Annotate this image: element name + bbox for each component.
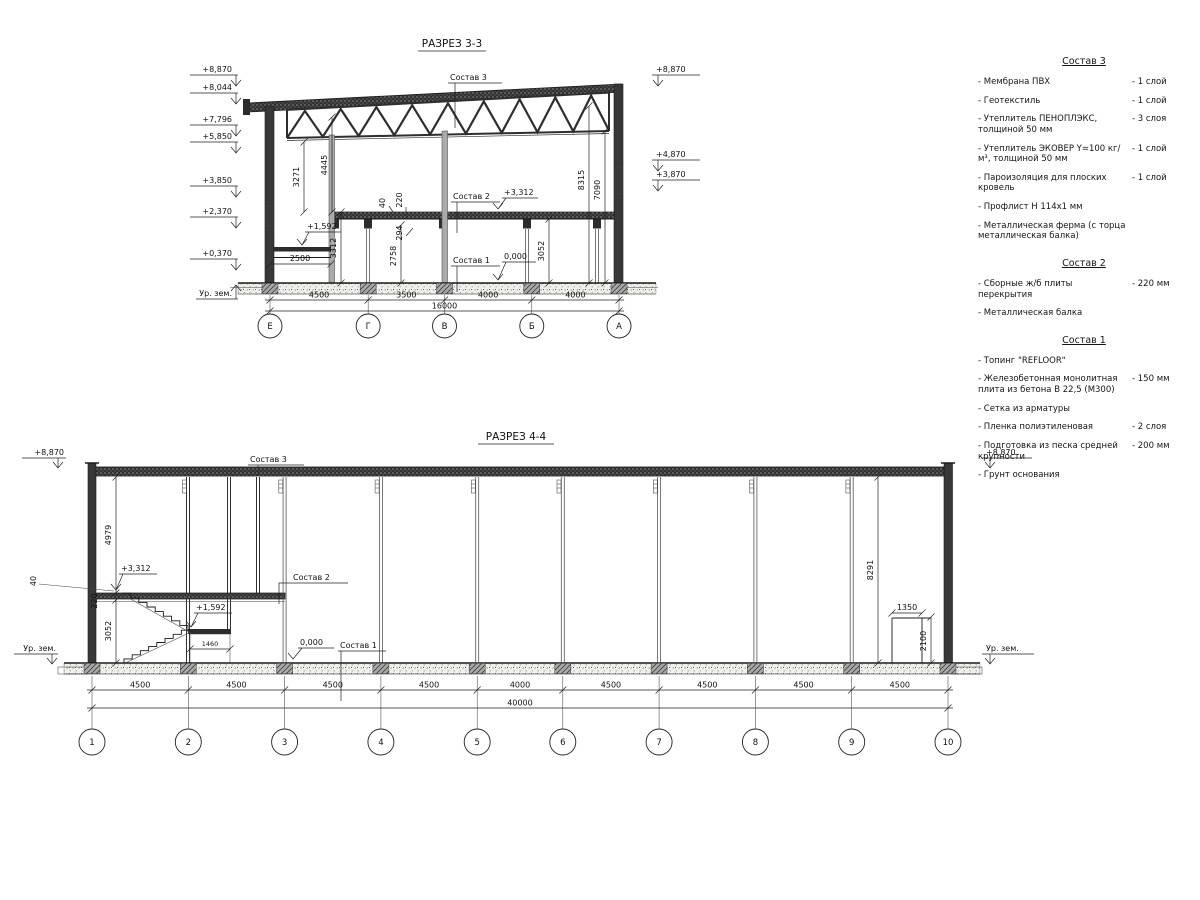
sostav3-label: Состав 3 [450,73,487,82]
foundation-pad [844,663,860,674]
door-under-landing [190,634,230,663]
elevation-label: +8,870 [202,65,232,74]
axis-bubble-label: Г [366,322,371,332]
span-dim-label: 4500 [890,681,910,690]
dim-line-2100 [928,614,935,667]
elevation-label: +5,850 [202,132,232,141]
columns-group [183,477,854,663]
span-dim-label: 4000 [510,681,530,690]
axis-bubble-label: В [442,322,448,332]
mezzanine-slab [331,212,614,219]
sostav1-label: Состав 1 [340,641,377,650]
column-cap-plate [375,480,379,493]
axis-dimension-chain: 450035004000400016000ЕГВБА [258,291,631,339]
ground-level-label: Ур. зем. [23,644,56,653]
level-3312-label: +3,312 [121,564,151,573]
legend-sostav3-items: - Мембрана ПВХ- 1 слой - Геотекстиль- 1 … [978,77,1190,242]
stair-landing [188,629,231,634]
column-cap-plate [557,480,561,493]
total-dim-label: 16000 [432,302,457,311]
legend-item: - Железобетонная монолитная плита из бет… [978,374,1190,395]
legend-item: - Утеплитель ЭКОВЕР Y=100 кг/м³, толщино… [978,144,1190,165]
dim-label: 3312 [329,238,338,258]
dim-line-8291 [875,474,882,667]
dim-label: 40 [378,198,387,208]
legend-title-sostav3: Состав 3 [978,56,1190,67]
beam-section [523,220,531,229]
legend-item: - Топинг "REFLOOR" [978,356,1190,367]
legend-item: - Профлист Н 114х1 мм [978,202,1190,213]
elevation-label: +8,870 [656,65,686,74]
elevation-label: +8,044 [202,83,232,92]
dim-leader-294 [406,228,413,236]
span-dim-label: 4500 [309,291,329,300]
roof-slab [248,84,621,112]
foundation-pad [651,663,667,674]
sostav2-label: Состав 2 [293,573,330,582]
dim-label: 3052 [104,621,113,641]
legend-item: - Геотекстиль- 1 слой [978,96,1190,107]
dim-label: 3271 [292,167,301,187]
total-dim-label: 40000 [507,699,532,708]
dim-label: 1350 [897,603,917,612]
span-dim-label: 4000 [565,291,585,300]
axis-bubble-label: Б [529,322,535,332]
stair-stringer-1 [121,632,191,665]
column-cap-plate [279,480,283,493]
column-cap-plate [750,480,754,493]
span-dim-label: 4500 [419,681,439,690]
roof-end-plate [243,99,250,115]
foundation-pad [524,283,540,294]
dim-chain-left [113,474,120,667]
sostav2-leader [279,583,348,604]
elevation-mark [652,180,700,191]
section-4-4-structure [58,463,982,674]
floor-slab [64,663,980,674]
span-dim-label: 4000 [478,291,498,300]
elevation-mark [190,259,241,270]
axis-bubble-label: 6 [560,738,565,748]
beam-section [364,220,372,229]
legend-item: - Металлическая балка [978,308,1190,319]
mezzanine-beam-lines [96,599,285,602]
legend-item: - Металлическая ферма (с торца металличе… [978,221,1190,242]
elevation-label: +3,870 [656,170,686,179]
column-cap-plate [183,480,187,493]
dim-label: 2758 [389,246,398,266]
legend-section-sostav2: Состав 2 - Сборные ж/б плиты перекрытия-… [978,258,1190,319]
steel-column [442,131,448,283]
interior-walls [187,477,260,663]
elevation-mark [190,217,241,228]
axis-bubble-label: 1 [89,738,94,748]
foundation-pad [437,283,453,294]
elevation-mark [14,654,58,664]
elevation-label: +4,870 [656,150,686,159]
column-cap-plate [471,480,475,493]
legend-item: - Пароизоляция для плоских кровель- 1 сл… [978,173,1190,194]
span-dim-label: 4500 [601,681,621,690]
foundation-pad [469,663,485,674]
right-wall [944,463,953,663]
right-wall [614,84,623,293]
dim-label: 220 [90,593,99,608]
dim-line-7090 [602,128,609,287]
foundation-pad [747,663,763,674]
mezzanine-slab [96,593,285,599]
composition-legend: Состав 3 - Мембрана ПВХ- 1 слой - Геотек… [978,56,1190,489]
legend-item: - Утеплитель ПЕНОПЛЭКС, толщиной 50 мм- … [978,114,1190,135]
elevation-label: +0,370 [202,249,232,258]
foundation-pad [262,283,278,294]
stair-flight-1 [124,630,190,663]
foundation-pad [940,663,956,674]
foundation-pad [555,663,571,674]
legend-section-sostav1: Состав 1 - Топинг "REFLOOR" - Железобето… [978,335,1190,481]
dim-label: 7090 [593,180,602,200]
dim-leader-40 [389,206,393,212]
elevation-mark [22,458,66,468]
sostav2-label: Состав 2 [453,192,490,201]
sostav1-label: Состав 1 [453,256,490,265]
dim-line-3271 [301,139,308,216]
foundation-pad [180,663,196,674]
left-wall [88,463,96,663]
level-0-mark [493,262,536,280]
dim-label: 4445 [320,155,329,175]
axis-bubble-label: 9 [849,738,854,748]
foundation-pad [611,283,627,294]
level-3312-mark [493,198,538,209]
span-dim-label: 4500 [130,681,150,690]
level-0-label: 0,000 [504,252,527,261]
dim-label: 2500 [290,254,310,263]
stair-landing-slab [274,247,331,252]
elevation-marks-left: +8,870 +8,044 +7,796 +5,850 +3,850 +2,37… [190,65,241,299]
beam-section [593,220,601,229]
elevation-label: +7,796 [202,115,232,124]
level-1592-label: +1,592 [196,603,226,612]
dim-label: 294 [395,225,404,240]
dim-label: 3052 [537,241,546,261]
span-dim-label: 4500 [226,681,246,690]
legend-title-sostav2: Состав 2 [978,258,1190,269]
legend-item: - Подготовка из песка средней крупности-… [978,441,1190,462]
level-0-label: 0,000 [300,638,323,647]
dim-label: 220 [395,192,404,207]
span-dim-label: 4500 [793,681,813,690]
axis-bubble-label: 2 [186,738,191,748]
axis-dimension-chain: 4500450045004500400045004500450045004000… [79,676,961,755]
axis-bubble-label: 5 [474,738,479,748]
dim-line-3052 [546,216,553,287]
dim-line-8315 [586,103,593,287]
dim-label: 8315 [577,170,586,190]
drawing-sheet: РАЗРЕЗ 3-3 +8,870 +8,044 +7,796 +5,850 +… [0,0,1200,900]
level-1592-label: +1,592 [307,222,337,231]
foundation-pad [373,663,389,674]
legend-item: - Мембрана ПВХ- 1 слой [978,77,1190,88]
level-1592-mark [186,613,232,627]
foundation-pad [84,663,100,674]
dim-label: 8291 [866,560,875,580]
column-cap-plate [846,480,850,493]
legend-item: - Грунт основания [978,470,1190,481]
axis-bubble-label: Е [267,322,272,332]
axis-bubble-label: 8 [753,738,758,748]
dim-leader-40 [39,584,114,591]
legend-item: - Сборные ж/б плиты перекрытия- 220 мм [978,279,1190,300]
elevation-marks-right: +8,870 +4,870 +3,870 [652,65,700,191]
elevation-mark [982,654,1034,664]
span-dim-label: 4500 [697,681,717,690]
elevation-label: +2,370 [202,207,232,216]
level-3312-mark [111,574,157,590]
mezzanine-beams [331,220,601,229]
column-cap-plate [653,480,657,493]
roof-slab [96,467,944,476]
legend-item: - Сетка из арматуры [978,404,1190,415]
section-title: РАЗРЕЗ 4-4 [486,431,547,443]
level-0-mark [288,648,334,659]
ground-level-label: Ур. зем. [986,644,1019,653]
sostav3-label: Состав 3 [250,455,287,464]
axis-bubble-label: 4 [378,738,383,748]
dim-label: 40 [29,576,38,586]
level-3312-label: +3,312 [504,188,534,197]
span-dim-label: 3500 [396,291,416,300]
foundation-pad [277,663,293,674]
axis-bubble-label: 3 [282,738,287,748]
elevation-mark [190,186,241,197]
dim-label: 1460 [202,640,219,648]
legend-title-sostav1: Состав 1 [978,335,1190,346]
elevation-label: +3,850 [202,176,232,185]
legend-item: - Пленка полиэтиленовая- 2 слоя [978,422,1190,433]
elevation-mark [190,142,241,153]
axis-bubble-label: А [616,322,622,332]
section-title: РАЗРЕЗ 3-3 [422,38,482,50]
elevation-label: +8,870 [34,448,64,457]
span-dim-label: 4500 [323,681,343,690]
dim-label: 2100 [919,631,928,651]
sostav1-leader [338,651,386,701]
axis-bubble-label: 7 [656,738,661,748]
dim-label: 4979 [104,525,113,545]
elevation-mark [652,75,700,86]
ground-level-label: Ур. зем. [199,289,232,298]
axis-bubble-label: 10 [943,738,954,748]
foundation-pad [360,283,376,294]
legend-sostav1-items: - Топинг "REFLOOR" - Железобетонная моно… [978,356,1190,481]
elevation-mark [190,93,241,104]
legend-sostav2-items: - Сборные ж/б плиты перекрытия- 220 мм -… [978,279,1190,319]
